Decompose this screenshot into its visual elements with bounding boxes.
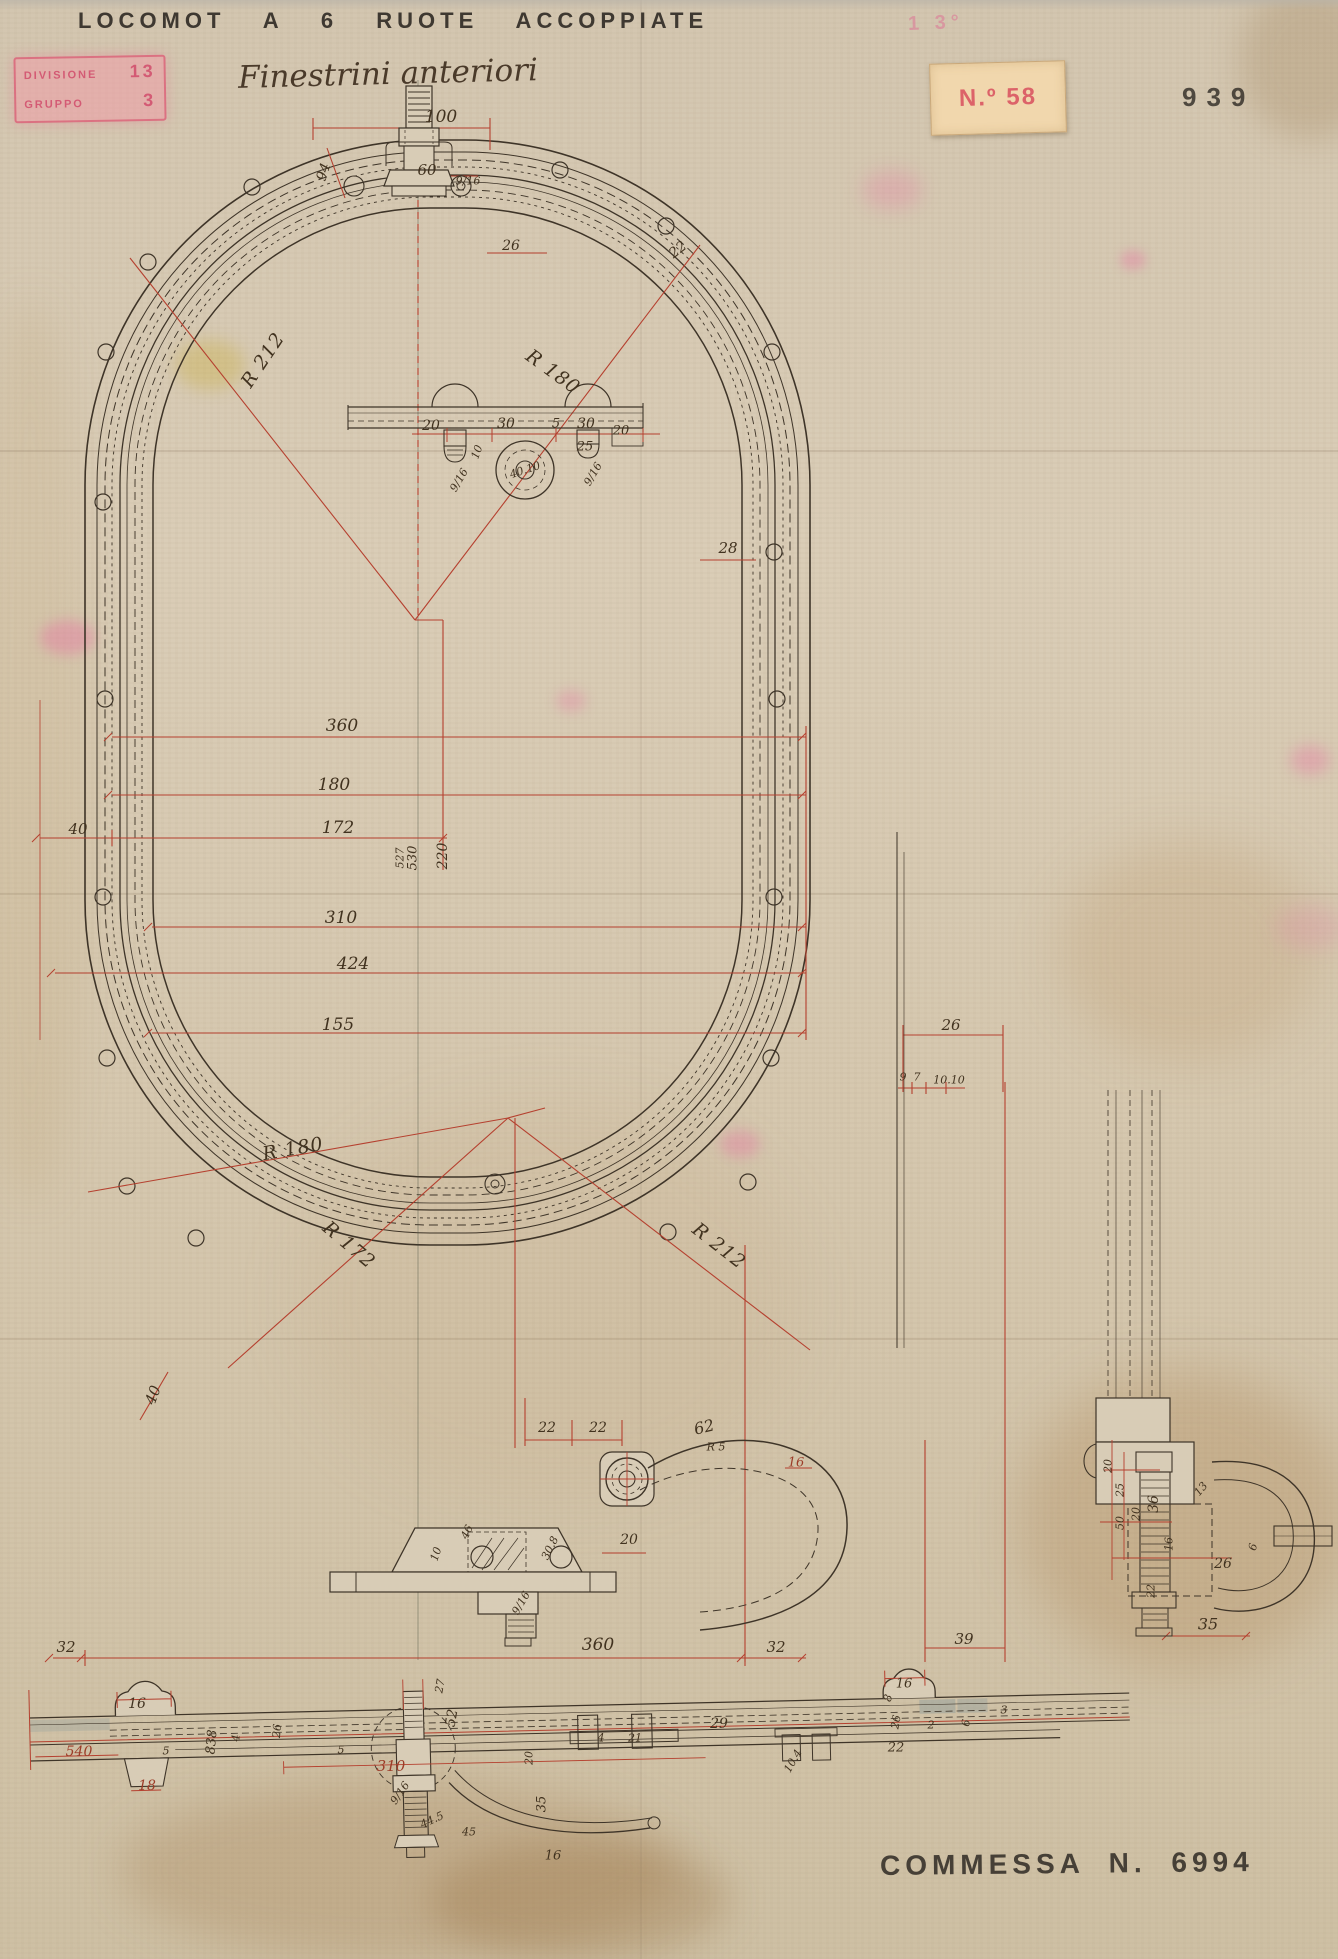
dimension-label: 22 [666,238,690,262]
dimension-label: 10.10 [933,1074,965,1087]
dimension-label: 30.8 [539,1534,561,1562]
dimension-label: 20 [620,1532,638,1548]
dimension-label: 35 [1198,1615,1218,1634]
dimension-label: 36 [1146,1495,1162,1513]
dimension-label: 32 [766,1638,785,1656]
dimension-label: 27 [432,1678,447,1694]
group-label: GRUPPO [24,98,84,111]
page-number-stamp: 939 [1182,82,1255,113]
division-stamp: DIVISIONE 13 GRUPPO 3 [13,55,166,124]
dimension-label: 26 [502,238,520,254]
dimension-label: 10.4 [781,1747,805,1775]
dimension-label: 310 [325,908,357,928]
dimension-label: 94 [314,161,335,183]
dimension-label: 9 [900,1071,907,1084]
dimension-label: 424 [337,954,369,974]
dimension-label: R 212 [688,1218,750,1273]
dimension-label: 32 [56,1638,75,1656]
dimension-label: 13 [1192,1479,1211,1498]
division-value: 13 [129,61,155,82]
dimension-label: 20 [523,1751,536,1765]
dimension-label: 45 [462,1826,476,1839]
dimension-label: 9/16 [447,466,471,494]
dimension-label: 20 [613,424,630,439]
dimension-label: 16 [1163,1537,1176,1551]
dimension-label: 530 [406,846,421,871]
dimension-label: 9/16 [388,1779,413,1807]
dimension-label: 3 [1001,1704,1008,1717]
dimension-label: 29 [710,1716,728,1732]
dimension-label: 35 [535,1796,550,1813]
dimension-label: 30 [497,416,515,432]
dimension-label: 16 [545,1849,562,1864]
dimension-label: 28 [718,539,737,557]
dimension-label: 20 [1102,1459,1115,1473]
dimension-label: 52 [443,1708,462,1728]
dimension-label: 20 [1130,1507,1143,1521]
dimension-label: 40 [141,1383,164,1407]
dimension-label: 10 [468,443,485,461]
dimension-label: 25 [577,440,594,455]
dimension-label: 7 [914,1071,921,1084]
dimension-label: 360 [326,716,358,736]
dimension-label: 22 [538,1420,556,1436]
dimension-label: 18 [138,1778,156,1794]
dimension-label: 44.5 [418,1809,446,1831]
dimension-label: 310 [377,1757,406,1775]
dimension-label: 540 [66,1744,93,1760]
dimension-label: 16 [128,1696,146,1712]
dimension-label: 60 [417,161,436,179]
dimension-label: 25 [1114,1483,1127,1497]
dimension-label: 10 [428,1545,445,1562]
division-label: DIVISIONE [24,69,98,82]
dimension-label: 220 [435,843,451,870]
dimension-label: 40 [68,820,87,838]
dimension-label: 4 [598,1732,605,1745]
dimension-label: 2 [928,1719,935,1732]
dimension-label: 172 [322,818,354,838]
dimension-label: R 180 [522,345,585,399]
dimension-label: 5 [163,1745,170,1758]
dimension-label: 26 [941,1016,960,1034]
dimension-label: 8 [881,1693,895,1703]
dimension-label: 22 [888,1741,905,1756]
dimension-label: 4 [229,1734,243,1742]
dimension-label: 155 [322,1015,354,1035]
dimension-label: 26 [888,1714,903,1730]
dimension-label: 20 [422,418,440,434]
commessa-stamp: COMMESSA N. 6994 [880,1846,1254,1882]
dimension-label: R 212 [237,328,290,391]
dimension-label: 16 [788,1456,805,1471]
dimension-label: 16 [896,1677,913,1692]
dimension-label: 30 [577,416,595,432]
dimension-label: 5 [552,417,560,432]
dimension-label: 360 [582,1635,614,1655]
dimension-label: 9/16 [581,460,605,488]
dimension-label: 100 [425,107,457,127]
dimension-label: 838 [203,1729,220,1755]
faint-stamp: 1 3° [908,11,965,36]
dimension-label: 6 [959,1718,973,1727]
annotation-layer: 100609/16942622R 212R 18020305302025109/… [0,0,1338,1959]
group-value: 3 [143,90,156,111]
dimension-label: 26 [1214,1556,1232,1572]
dimension-label: 62 [692,1415,716,1438]
dimension-label: 9/16 [509,1589,533,1617]
dimension-label: 180 [318,775,350,795]
dimension-label: R 172 [318,1217,379,1273]
tag-number: N.º 58 [959,83,1038,113]
dimension-label: 22 [1145,1584,1158,1598]
dimension-label: 6 [1246,1542,1260,1552]
dimension-label: 21 [628,1732,642,1745]
dimension-label: R 180 [261,1133,326,1165]
dimension-label: 40.10 [508,459,542,481]
drawing-sheet: 100609/16942622R 212R 18020305302025109/… [0,0,1338,1959]
dimension-label: 46 [458,1523,476,1541]
dimension-label: 50 [1114,1516,1127,1530]
title-stamp: LOCOMOT A 6 RUOTE ACCOPPIATE [78,8,708,34]
dimension-label: 26 [270,1723,284,1738]
dimension-label: 5 [338,1744,345,1757]
dimension-label: 22 [589,1420,607,1436]
dimension-label: 9/16 [456,175,481,188]
tag-sticker: N.º 58 [929,60,1067,136]
dimension-label: 39 [954,1630,973,1648]
dimension-label: R 5 [707,1441,726,1454]
